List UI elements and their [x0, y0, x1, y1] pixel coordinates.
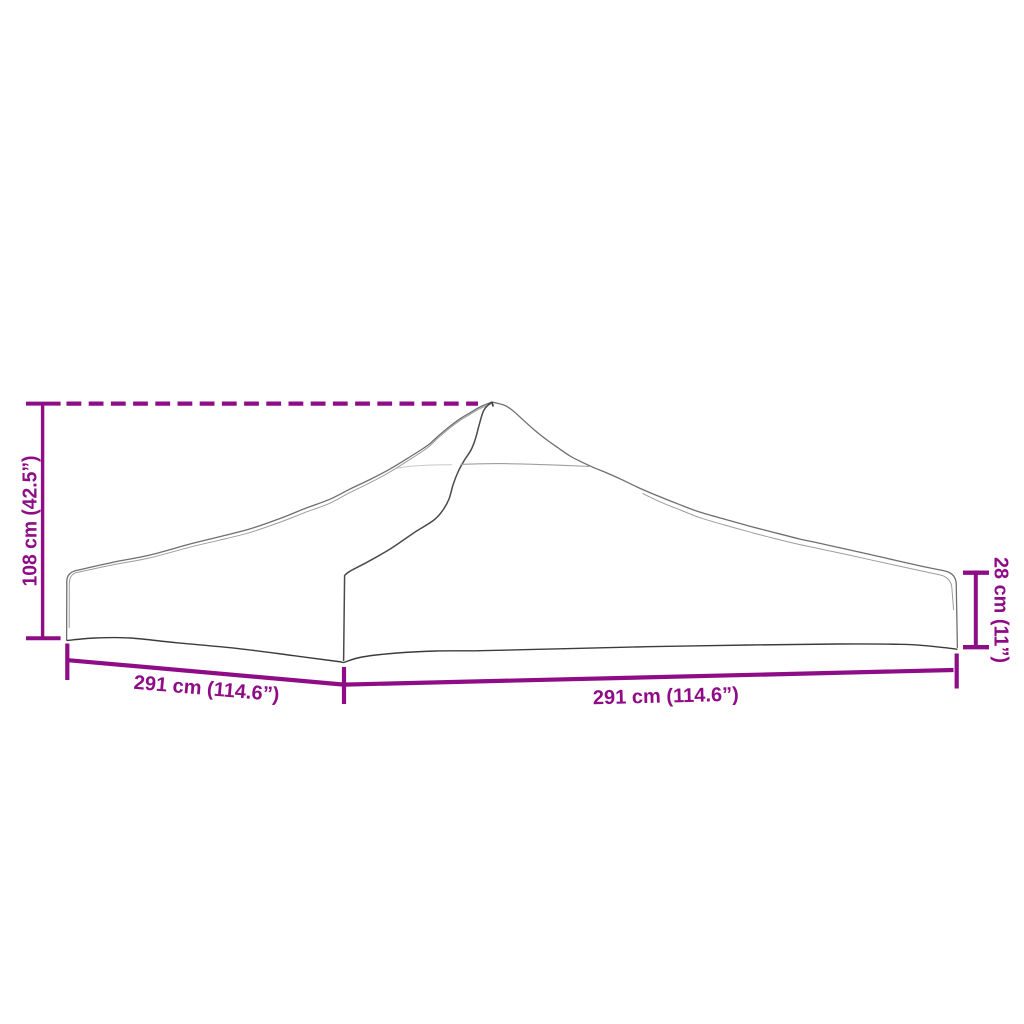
svg-text:291 cm (114.6”): 291 cm (114.6”) [593, 684, 739, 710]
svg-text:28 cm (11”): 28 cm (11”) [989, 557, 1011, 663]
svg-text:108 cm (42.5”): 108 cm (42.5”) [19, 456, 41, 587]
